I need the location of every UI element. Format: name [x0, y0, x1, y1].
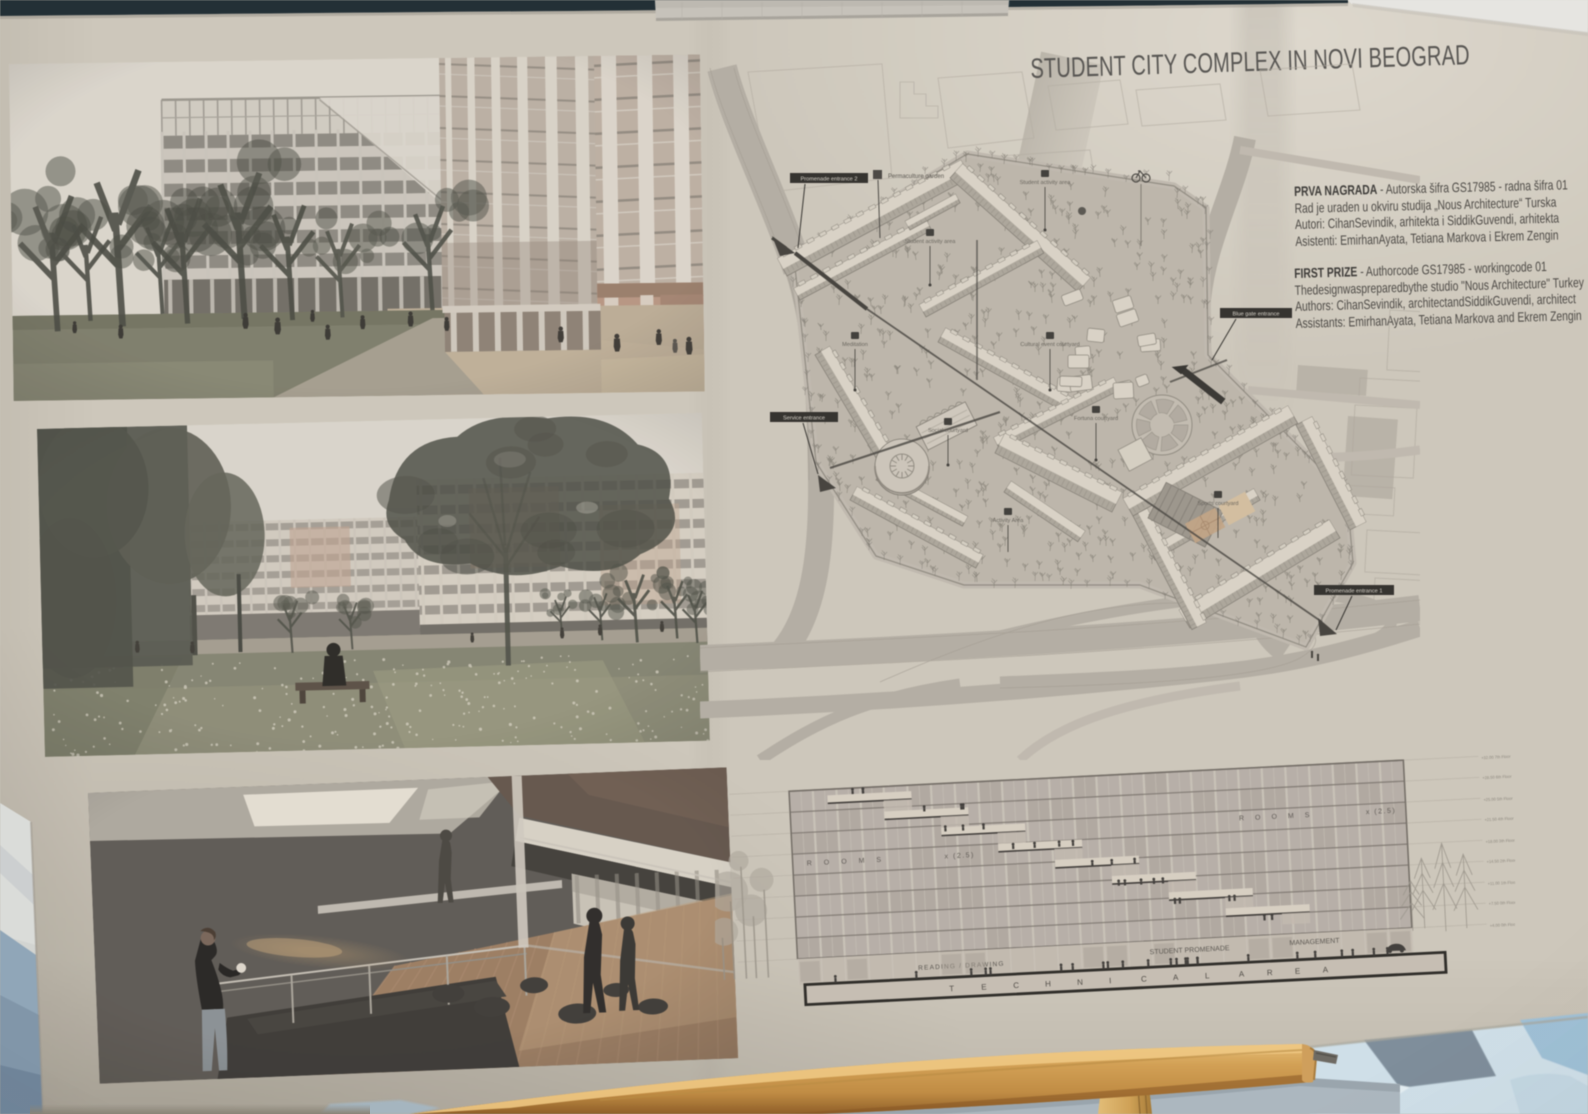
svg-text:Permaculture garden: Permaculture garden	[888, 174, 944, 180]
svg-text:E: E	[981, 983, 987, 992]
svg-text:Social courtyard: Social courtyard	[928, 428, 968, 434]
svg-text:C: C	[1141, 974, 1147, 983]
svg-text:+18.00 3th Floor: +18.00 3th Floor	[1485, 838, 1515, 845]
svg-text:+7.50 0th Floor: +7.50 0th Floor	[1489, 900, 1515, 906]
svg-text:+21.50 4th Floor: +21.50 4th Floor	[1484, 816, 1514, 823]
svg-text:E: E	[1295, 967, 1301, 976]
svg-text:+14.50 2th Floor: +14.50 2th Floor	[1486, 858, 1515, 865]
svg-text:I: I	[1109, 976, 1112, 985]
svg-text:Promenade entrance 1: Promenade entrance 1	[1326, 589, 1383, 595]
svg-text:Student activity area: Student activity area	[1020, 180, 1072, 186]
svg-text:Student activity area: Student activity area	[905, 239, 957, 245]
svg-text:Service entrance: Service entrance	[783, 416, 825, 422]
svg-text:C: C	[1013, 981, 1019, 990]
svg-text:+4.00 0th Floor: +4.00 0th Floor	[1490, 922, 1515, 928]
svg-text:Cultural event courtyard: Cultural event courtyard	[1020, 342, 1079, 348]
svg-text:H: H	[1045, 979, 1051, 988]
svg-text:T: T	[949, 984, 954, 993]
svg-text:N: N	[1077, 978, 1083, 987]
svg-text:Promenade entrance 2: Promenade entrance 2	[801, 177, 858, 183]
svg-text:+32.00 7th Floor: +32.00 7th Floor	[1481, 754, 1511, 761]
svg-text:Meditation: Meditation	[842, 342, 868, 348]
svg-text:+28.50 6th Floor: +28.50 6th Floor	[1482, 774, 1512, 781]
svg-text:R: R	[1267, 968, 1273, 977]
svg-text:Blue gate entrance: Blue gate entrance	[1233, 312, 1280, 318]
svg-text:+11.00 1th Floor: +11.00 1th Floor	[1488, 880, 1515, 886]
svg-text:+25.00 5th Floor: +25.00 5th Floor	[1483, 796, 1513, 803]
svg-text:Sports courtyard: Sports courtyard	[1197, 501, 1238, 507]
svg-text:Activity Area: Activity Area	[993, 518, 1025, 524]
svg-text:Fortuna courtyard: Fortuna courtyard	[1074, 416, 1118, 422]
